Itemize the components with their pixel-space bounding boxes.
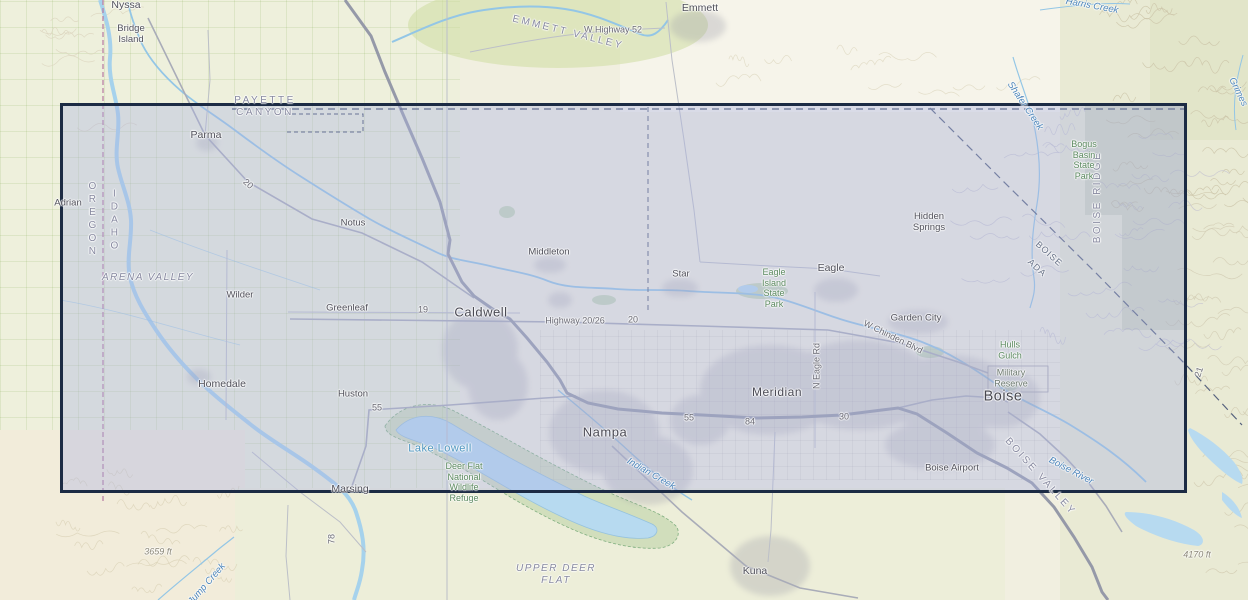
map-label-harris-creek-54: Harris Creek	[1065, 0, 1119, 16]
map-label-w-chinden-blvd-25: W Chinden Blvd	[862, 318, 925, 356]
map-label-84-36: 84	[745, 417, 755, 428]
map-label-upper-deer-flat-46: UPPER DEER FLAT	[516, 563, 596, 587]
map-label-boise-ridge-51: BOISE RIDGE	[1092, 151, 1104, 244]
map-label-55-29: 55	[372, 403, 382, 414]
map-label-idaho-9: IDAHO	[108, 189, 120, 254]
map-label-greenleaf-17: Greenleaf	[326, 302, 368, 313]
map-label-emmett-valley-4: EMMETT VALLEY	[511, 13, 625, 52]
map-label-4170-ft-48: 4170 ft	[1183, 550, 1211, 561]
map-label-boise-river-44: Boise River	[1047, 455, 1095, 488]
map-label-hidden-springs-23: Hidden Springs	[913, 211, 945, 233]
map-label-n-eagle-rd-26: N Eagle Rd	[812, 343, 823, 389]
map-label-boise-31: Boise	[984, 388, 1023, 405]
map-label-20-20: 20	[628, 315, 638, 326]
map-label-boise-airport-42: Boise Airport	[925, 462, 979, 473]
map-label-notus-10: Notus	[341, 217, 366, 228]
map-label-homedale-27: Homedale	[198, 378, 246, 390]
map-label-nyssa-0: Nyssa	[111, 0, 140, 11]
map-label-garden-city-24: Garden City	[891, 312, 942, 323]
map-label-ada-57: ADA	[1025, 257, 1048, 279]
map-label-indian-creek-41: Indian Creek	[625, 456, 677, 493]
map-label-w-highway-52-3: W Highway 52	[584, 25, 642, 36]
map-label-19-21: 19	[418, 305, 428, 316]
map-label-deer-flat-national-wildlife-refuge-39: Deer Flat National Wildlife Refuge	[445, 461, 482, 503]
map-label-shafer-creek-53: Shafer Creek	[1005, 80, 1046, 133]
map-label-middleton-11: Middleton	[528, 246, 569, 257]
map-label-3659-ft-47: 3659 ft	[144, 547, 172, 558]
map-label-huston-28: Huston	[338, 388, 368, 399]
map-label-lake-lowell-38: Lake Lowell	[408, 443, 472, 456]
map-label-meridian-30: Meridian	[752, 385, 802, 399]
map-labels: NyssaBridge IslandEmmettW Highway 52EMME…	[0, 0, 1248, 600]
map-label-eagle-14: Eagle	[818, 262, 845, 274]
map-label-grimes-55: Grimes	[1226, 76, 1248, 108]
map-label-78-50: 78	[327, 534, 338, 544]
map-label-20-22: 20	[241, 177, 256, 192]
map-label-30-37: 30	[839, 412, 849, 423]
map-label-boise-valley-43: BOISE VALLEY	[1002, 436, 1078, 519]
map-label-kuna-45: Kuna	[743, 565, 768, 577]
map-label-55-35: 55	[684, 413, 694, 424]
map-label-oregon-8: OREGON	[86, 181, 98, 259]
map-label-emmett-2: Emmett	[682, 2, 718, 14]
map-label-bogus-basin-state-park-52: Bogus Basin State Park	[1071, 139, 1097, 181]
map-label-eagle-island-state-park-15: Eagle Island State Park	[762, 267, 786, 309]
map-label-nampa-34: Nampa	[583, 424, 627, 439]
map-label-star-13: Star	[672, 268, 689, 279]
map-label-military-reserve-33: Military Reserve	[994, 367, 1028, 388]
map-label-payette-canyon-5: PAYETTE CANYON	[234, 95, 296, 119]
map-label-parma-6: Parma	[191, 129, 222, 141]
map-label-highway-20-26-19: Highway 20/26	[545, 316, 605, 327]
map-label-adrian-7: Adrian	[54, 197, 81, 208]
map-label-bridge-island-1: Bridge Island	[117, 23, 144, 45]
map-label-marsing-40: Marsing	[331, 483, 368, 495]
map-label-boise-56: BOISE	[1033, 239, 1064, 269]
map-label-wilder-16: Wilder	[227, 289, 254, 300]
map-label-21-58: 21	[1192, 366, 1205, 379]
map-label-caldwell-18: Caldwell	[454, 304, 507, 319]
map-label-jump-creek-49: Jump Creek	[186, 561, 228, 600]
map-label-arena-valley-12: ARENA VALLEY	[102, 272, 194, 284]
map-canvas[interactable]: NyssaBridge IslandEmmettW Highway 52EMME…	[0, 0, 1248, 600]
map-label-hulls-gulch-32: Hulls Gulch	[998, 339, 1022, 360]
